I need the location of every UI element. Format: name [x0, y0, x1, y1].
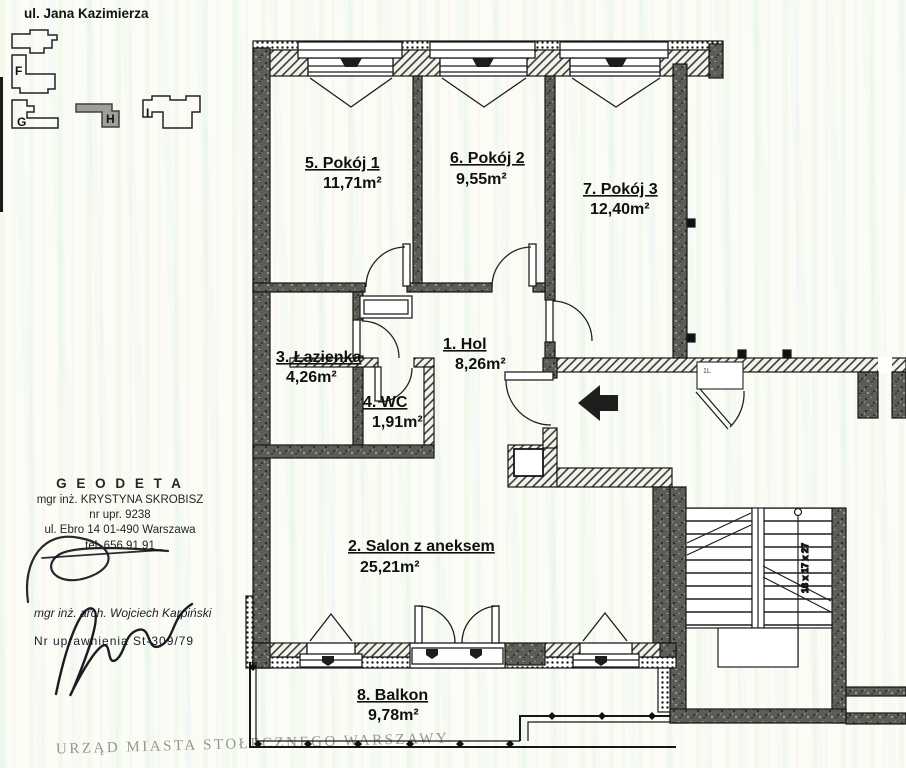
room-area-balkon: 9,78m²: [368, 707, 419, 724]
wc-north-wall: [414, 358, 434, 367]
landing-niche: 1L: [697, 362, 743, 389]
stair-west-wall: [670, 487, 686, 723]
door-entrance: [505, 372, 553, 425]
scanned-floor-plan-page: ul. Jana Kazimierza G E O D E T A mgr in…: [0, 0, 906, 768]
architect-signature: [56, 604, 192, 695]
wall-stub: [738, 350, 746, 358]
wall-stub: [687, 219, 695, 227]
wall-p1-p2: [413, 76, 422, 285]
room-label-wc: 4. WC: [363, 394, 408, 411]
site-building-g-label: G: [17, 115, 26, 129]
room-area-wc: 1,91m²: [372, 414, 423, 431]
east-wall: [673, 64, 687, 358]
duct-shaft: [514, 449, 543, 476]
south-wall-segment: [355, 643, 415, 657]
room-label-balkon: 8. Balkon: [357, 687, 428, 704]
railing-post-marks: [249, 663, 656, 748]
bathroom-east-wall: [353, 356, 363, 445]
door-pokoj2: [492, 244, 536, 287]
east-corridor-wall: [846, 713, 906, 724]
site-building-i-label: I: [146, 106, 149, 120]
stair-south-wall: [670, 709, 846, 723]
entrance-arrow-icon: [578, 385, 618, 421]
entrance-wall-lower: [543, 428, 557, 448]
north-windows: [298, 42, 668, 107]
window-salon-left: [300, 614, 362, 667]
window-pokoj2: [430, 42, 535, 107]
room-label-hol: 1. Hol: [443, 336, 487, 353]
floor-plan-drawing: F G H I: [0, 0, 906, 768]
room-area-pokoj3: 12,40m²: [590, 201, 650, 218]
balcony-door: [410, 606, 505, 668]
site-building-h-label: H: [106, 112, 115, 126]
landing-south-wall: [557, 468, 672, 487]
west-wall-outer-band: [246, 596, 253, 668]
signatures: [27, 537, 192, 695]
door-landing: [696, 389, 744, 429]
hall-north-wall: [253, 283, 365, 292]
room-area-lazienka: 4,26m²: [286, 369, 337, 386]
hall-north-wall: [407, 283, 492, 292]
corridor-pier: [892, 372, 906, 418]
room-label-pokoj2: 6. Pokój 2: [450, 150, 525, 167]
south-windows: [300, 606, 639, 668]
west-wall: [253, 48, 270, 668]
wall-stub: [687, 334, 695, 342]
stair-east-wall: [832, 508, 846, 723]
room-label-lazienka: 3. Łazienka: [276, 349, 361, 366]
scan-edge-artifact: [0, 77, 3, 212]
site-building-outline: [12, 30, 57, 53]
wc-east-wall: [424, 367, 434, 445]
surveyor-signature: [27, 537, 168, 602]
corridor-wall-opening: [878, 357, 892, 373]
east-corridor-wall: [846, 687, 906, 696]
south-wall-corner: [660, 643, 676, 657]
wall-p3-west: [545, 342, 555, 358]
site-building-f-label: F: [15, 64, 22, 78]
stair-flights: [686, 508, 832, 667]
staircase: 18 x 17 x 27: [658, 487, 906, 724]
living-room-north-wall: [253, 445, 434, 458]
room-area-hol: 8,26m²: [455, 356, 506, 373]
stair-dimensions-label: 18 x 17 x 27: [800, 543, 810, 593]
room-area-pokoj1: 11,71m²: [323, 175, 382, 192]
corridor-pier: [858, 372, 878, 418]
hall-wardrobe: [360, 296, 412, 318]
room-label-pokoj3: 7. Pokój 3: [583, 181, 658, 198]
door-pokoj1: [366, 244, 410, 287]
balcony-railing: [249, 662, 676, 748]
wall-stub: [783, 350, 791, 358]
room-label-salon: 2. Salon z aneksem: [348, 538, 495, 555]
room-area-pokoj2: 9,55m²: [456, 171, 507, 188]
site-building-i: [143, 96, 200, 128]
north-wall-end-cap: [709, 44, 723, 78]
room-area-salon: 25,21m²: [360, 559, 420, 576]
wall-p2-p3: [545, 76, 555, 300]
window-pokoj1: [298, 42, 402, 107]
room-label-pokoj1: 5. Pokój 1: [305, 155, 380, 172]
landing-niche-label: 1L: [703, 368, 711, 375]
living-room-east-wall: [653, 487, 670, 643]
site-plan: F G H I: [12, 30, 200, 129]
window-pokoj3: [560, 42, 668, 107]
window-salon-right: [573, 613, 639, 667]
room-labels: 5. Pokój 1 11,71m² 6. Pokój 2 9,55m² 7. …: [276, 150, 658, 724]
door-pokoj3: [546, 300, 592, 342]
